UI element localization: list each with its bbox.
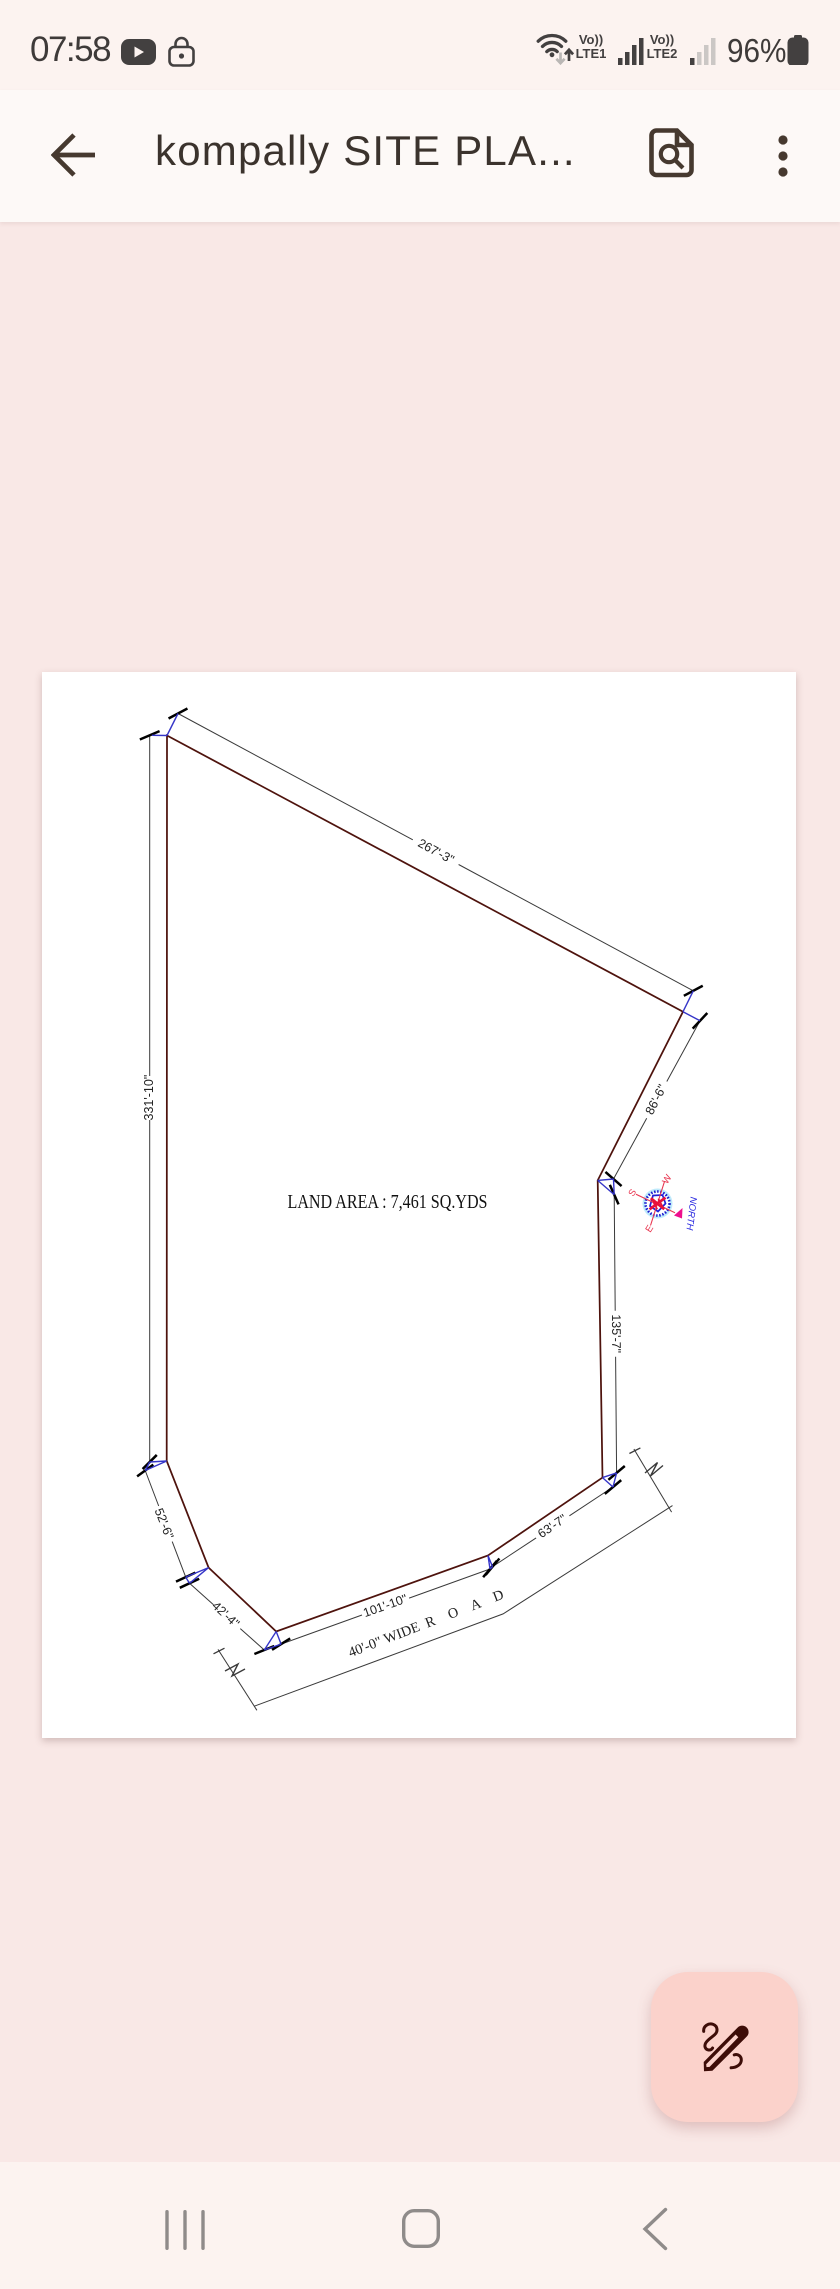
- svg-text:101'-10": 101'-10": [361, 1592, 409, 1620]
- svg-text:S: S: [627, 1187, 640, 1198]
- svg-text:NORTH: NORTH: [683, 1196, 698, 1231]
- svg-text:86'-6": 86'-6": [643, 1082, 670, 1117]
- svg-text:W: W: [660, 1173, 674, 1186]
- svg-text:331'-10": 331'-10": [142, 1075, 156, 1121]
- svg-text:40'-0" WIDE R O A D: 40'-0" WIDE R O A D: [346, 1585, 511, 1661]
- svg-text:52'-6": 52'-6": [152, 1506, 177, 1541]
- svg-text:42'-4": 42'-4": [209, 1599, 242, 1631]
- svg-text:LAND AREA : 7,461 SQ.YDS: LAND AREA : 7,461 SQ.YDS: [288, 1192, 488, 1213]
- svg-text:135'-7": 135'-7": [609, 1314, 623, 1353]
- svg-text:E: E: [644, 1223, 657, 1234]
- svg-text:267'-3": 267'-3": [416, 836, 457, 867]
- svg-text:63'-7": 63'-7": [535, 1512, 569, 1541]
